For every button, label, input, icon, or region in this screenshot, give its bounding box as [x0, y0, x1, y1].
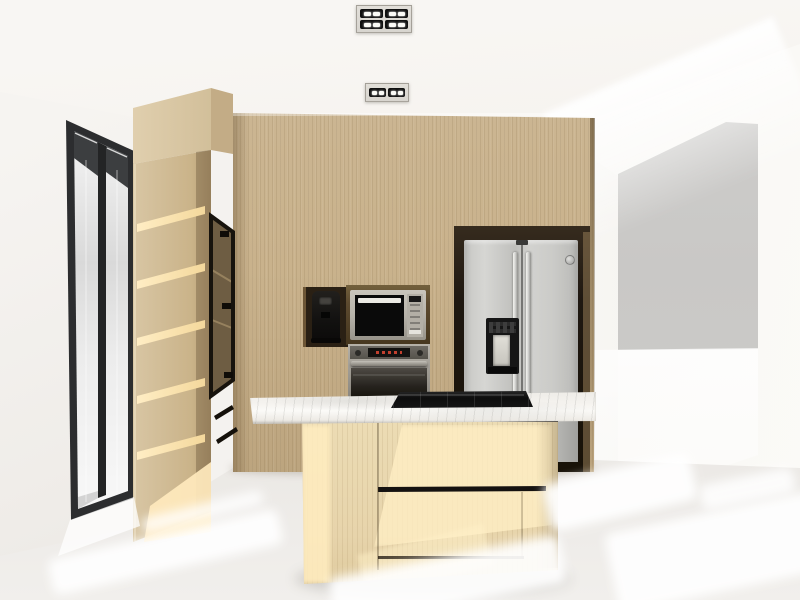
lamp-lens [389, 12, 396, 16]
gas-cooktop [391, 390, 533, 408]
lamp-lens [372, 91, 377, 95]
fridge-below-counter [558, 421, 578, 462]
shelf-cabinet-top-box-side [211, 88, 233, 154]
lamp-module [369, 88, 386, 97]
lamp-lens [398, 91, 403, 95]
island-panel-seam-left [377, 422, 379, 570]
lamp-lens [391, 91, 396, 95]
drawer-unit [214, 405, 238, 444]
lamp-lens [398, 12, 405, 16]
lamp-module [385, 20, 408, 29]
lamp-lens [389, 23, 396, 27]
lamp-lens [379, 91, 384, 95]
cooktop-glint [398, 394, 524, 396]
lamp-module [360, 20, 383, 29]
window [66, 120, 134, 520]
lamp-lens [364, 23, 371, 27]
glass-cabinet-hinge-mid [222, 303, 231, 309]
lamp-module [385, 9, 408, 18]
window-mullion [98, 142, 106, 498]
glass-door-cabinet [211, 216, 233, 396]
lamp-lens [364, 12, 371, 16]
glass-cabinet-hinge-bottom [224, 372, 233, 378]
lamp-lens [373, 12, 380, 16]
shelf-cabinet-inner-shadow [196, 150, 211, 517]
island-sun-patch-left [302, 425, 330, 583]
lamp-module [388, 88, 405, 97]
drawer-groove-1 [214, 405, 234, 420]
lamp-module [360, 9, 383, 18]
drawer-groove-2 [216, 427, 238, 444]
kitchen-render [0, 0, 800, 600]
lamp-lens [398, 23, 405, 27]
ceiling-light-fixture-b [365, 83, 409, 102]
ceiling-light-fixture-a [356, 5, 412, 33]
glass-cabinet-hinge-top [220, 231, 229, 237]
lamp-lens [373, 23, 380, 27]
